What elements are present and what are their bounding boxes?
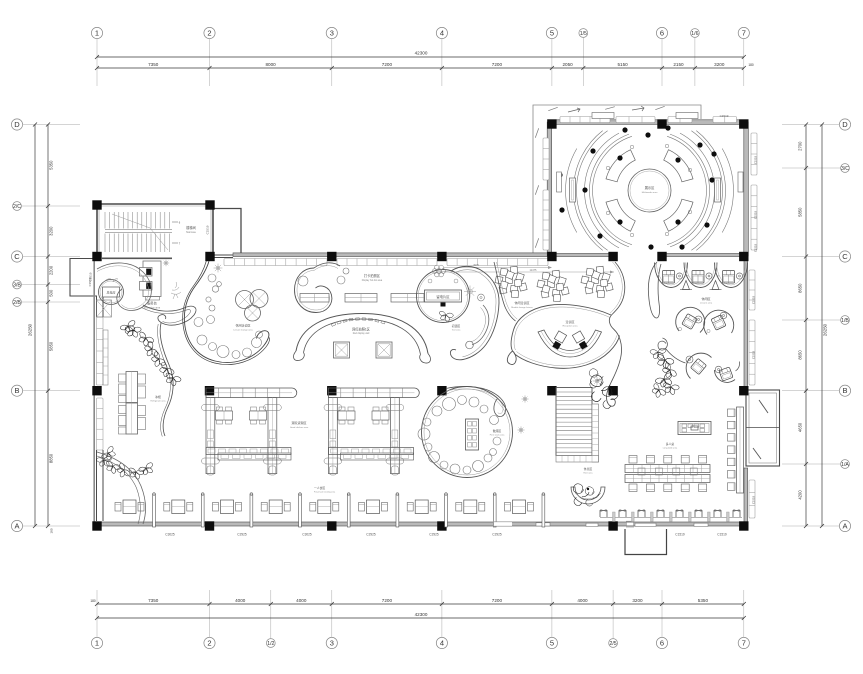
svg-text:C1519: C1519 — [675, 533, 685, 537]
svg-text:1: 1 — [95, 29, 99, 38]
svg-text:42300: 42300 — [415, 51, 428, 56]
svg-text:1: 1 — [95, 639, 99, 648]
svg-text:Module lounge leisure: Module lounge leisure — [511, 306, 533, 309]
svg-text:6: 6 — [660, 639, 664, 648]
svg-text:C3025: C3025 — [302, 533, 312, 537]
svg-text:3: 3 — [330, 29, 334, 38]
svg-text:C2925: C2925 — [429, 533, 439, 537]
svg-text:C1519: C1519 — [754, 210, 758, 219]
svg-text:楼梯间: 楼梯间 — [186, 225, 196, 230]
svg-text:C1519: C1519 — [206, 225, 210, 234]
svg-text:3200: 3200 — [49, 226, 54, 236]
svg-text:C1519: C1519 — [754, 155, 758, 164]
svg-text:4200: 4200 — [798, 490, 803, 500]
svg-text:2/B: 2/B — [13, 300, 21, 306]
svg-text:26250: 26250 — [823, 323, 828, 336]
svg-text:1/6: 1/6 — [691, 31, 698, 37]
svg-text:D: D — [842, 120, 848, 129]
svg-text:C1519: C1519 — [717, 533, 727, 537]
svg-text:5350: 5350 — [49, 160, 54, 170]
svg-text:8650: 8650 — [798, 350, 803, 360]
svg-text:6: 6 — [660, 29, 664, 38]
svg-text:一人食区: 一人食区 — [314, 486, 325, 490]
svg-text:多人桌: 多人桌 — [666, 442, 675, 446]
svg-text:2050: 2050 — [562, 62, 573, 67]
svg-text:Refrigerate area: Refrigerate area — [150, 400, 166, 403]
svg-text:4000: 4000 — [577, 598, 588, 603]
svg-text:1/2: 1/2 — [267, 641, 274, 647]
svg-text:4000: 4000 — [296, 598, 307, 603]
svg-text:Test area: Test area — [452, 329, 461, 332]
svg-text:C1519: C1519 — [754, 243, 758, 252]
svg-text:7200: 7200 — [492, 62, 503, 67]
svg-text:7200: 7200 — [492, 598, 503, 603]
svg-text:Long table area: Long table area — [663, 447, 678, 450]
svg-text:Leisure area: Leisure area — [700, 302, 713, 305]
svg-text:2: 2 — [207, 639, 211, 648]
svg-text:休息区: 休息区 — [584, 467, 593, 471]
svg-text:180: 180 — [90, 599, 96, 603]
svg-text:C2925: C2925 — [366, 533, 376, 537]
svg-text:5350: 5350 — [698, 598, 709, 603]
svg-text:D: D — [14, 120, 20, 129]
svg-text:C3025: C3025 — [165, 533, 175, 537]
svg-text:500: 500 — [49, 289, 54, 297]
svg-text:Leisure lounge area: Leisure lounge area — [233, 329, 253, 332]
svg-text:2/5: 2/5 — [609, 641, 616, 647]
svg-text:C: C — [842, 252, 848, 261]
svg-text:2/C: 2/C — [13, 204, 21, 210]
svg-text:A: A — [14, 522, 19, 531]
svg-text:2150: 2150 — [673, 62, 684, 67]
svg-text:B: B — [842, 386, 847, 395]
svg-text:5850: 5850 — [798, 207, 803, 217]
svg-text:3200: 3200 — [632, 598, 643, 603]
svg-text:3: 3 — [330, 639, 334, 648]
svg-text:26250: 26250 — [28, 323, 33, 336]
svg-text:洽谈区: 洽谈区 — [565, 319, 574, 324]
svg-text:C1519: C1519 — [752, 495, 756, 504]
svg-text:C2925: C2925 — [237, 533, 247, 537]
svg-text:Red display wall: Red display wall — [353, 333, 370, 335]
svg-text:1/B: 1/B — [841, 318, 849, 324]
svg-text:5: 5 — [550, 29, 554, 38]
svg-text:4: 4 — [440, 29, 444, 38]
svg-text:C: C — [14, 252, 20, 261]
svg-text:7350: 7350 — [148, 62, 159, 67]
svg-text:Free seats area: Free seats area — [490, 434, 505, 437]
svg-text:Staircase: Staircase — [186, 231, 197, 234]
svg-text:7: 7 — [742, 29, 746, 38]
svg-text:3/C: 3/C — [841, 166, 849, 172]
svg-text:4650: 4650 — [798, 422, 803, 432]
svg-text:总电房: 总电房 — [106, 290, 115, 295]
svg-text:7350: 7350 — [148, 598, 159, 603]
svg-text:1/5: 1/5 — [580, 31, 587, 37]
svg-text:C1519: C1519 — [752, 295, 756, 304]
svg-text:2700: 2700 — [798, 141, 803, 151]
svg-text:散座区: 散座区 — [493, 429, 502, 433]
svg-text:180: 180 — [748, 63, 754, 67]
svg-text:180: 180 — [50, 528, 54, 533]
svg-text:休闲洽谈区: 休闲洽谈区 — [235, 323, 250, 328]
svg-text:7: 7 — [742, 639, 746, 648]
svg-text:2200: 2200 — [49, 265, 54, 275]
svg-text:5150: 5150 — [617, 62, 628, 67]
svg-text:冰柜: 冰柜 — [155, 394, 161, 399]
svg-text:A: A — [842, 522, 847, 531]
svg-text:Good shelves area: Good shelves area — [290, 426, 309, 429]
svg-text:潮玩货架区: 潮玩货架区 — [291, 420, 306, 425]
svg-text:Reception area: Reception area — [563, 325, 579, 328]
svg-text:11475: 11475 — [529, 268, 537, 272]
svg-text:Rest area: Rest area — [583, 472, 593, 475]
svg-text:For private seating area: For private seating area — [314, 491, 336, 494]
svg-text:网红拍照1区: 网红拍照1区 — [352, 327, 371, 332]
svg-text:4: 4 — [440, 639, 444, 648]
svg-text:42300: 42300 — [415, 612, 428, 617]
svg-text:C1519: C1519 — [752, 350, 756, 359]
svg-text:3200: 3200 — [714, 62, 725, 67]
svg-text:Display hot dot area: Display hot dot area — [362, 279, 383, 282]
svg-text:4000: 4000 — [235, 598, 246, 603]
svg-text:5850: 5850 — [49, 341, 54, 351]
svg-text:C2925: C2925 — [492, 533, 502, 537]
svg-text:打卡拍照区: 打卡拍照区 — [364, 273, 381, 278]
svg-text:C1519: C1519 — [88, 277, 92, 286]
svg-text:8850: 8850 — [49, 453, 54, 463]
svg-text:展示区: 展示区 — [645, 185, 655, 190]
svg-text:2: 2 — [207, 29, 211, 38]
svg-text:B: B — [14, 386, 19, 395]
svg-text:留电片区: 留电片区 — [436, 294, 450, 299]
svg-text:休闲区: 休闲区 — [701, 296, 710, 301]
svg-text:初选区: 初选区 — [452, 324, 461, 328]
svg-text:休闲洽谈区: 休闲洽谈区 — [514, 300, 529, 305]
svg-text:8000: 8000 — [265, 62, 276, 67]
svg-text:7200: 7200 — [382, 62, 393, 67]
svg-text:7200: 7200 — [382, 598, 393, 603]
svg-text:C1519: C1519 — [720, 114, 729, 118]
svg-text:3/B: 3/B — [13, 282, 21, 288]
svg-text:8650: 8650 — [798, 283, 803, 293]
svg-text:4975: 4975 — [473, 263, 479, 267]
svg-text:1/A: 1/A — [841, 462, 849, 468]
svg-text:5: 5 — [550, 639, 554, 648]
svg-text:Multimedia area: Multimedia area — [642, 191, 658, 194]
